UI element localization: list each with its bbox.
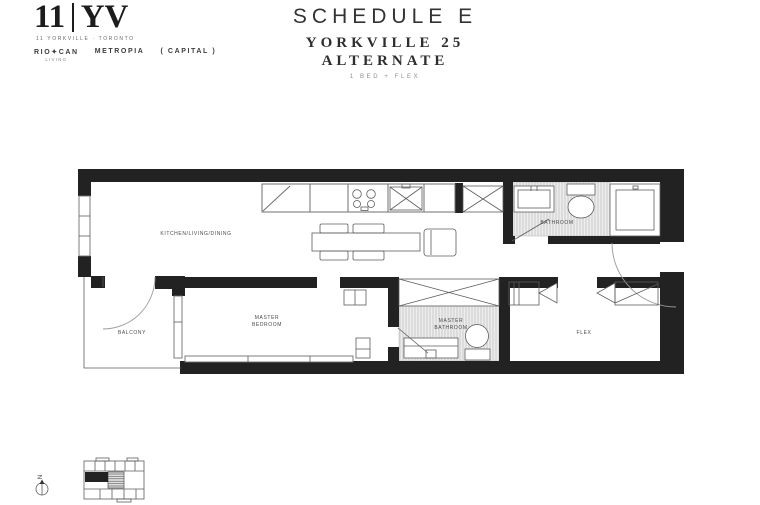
north-arrow-icon: N: [36, 475, 48, 495]
master-bathroom-label-2: BATHROOM: [434, 325, 467, 331]
floor-plan-drawing: KITCHEN/LIVING/DINING MASTER BEDROOM MAS…: [0, 0, 760, 505]
kitchen-living-dining-label: KITCHEN/LIVING/DINING: [160, 231, 231, 237]
key-plan: [84, 458, 144, 502]
balcony-label: BALCONY: [118, 330, 146, 336]
north-label: N: [38, 475, 44, 479]
vanity-sink-icon: [514, 186, 554, 212]
lounge-chair: [424, 229, 456, 256]
balcony-outline: [84, 277, 181, 368]
floorplan-page: 11 YV 11 YORKVILLE · TORONTO RIO✦CAN LIV…: [0, 0, 760, 505]
balcony-door-swing: [103, 277, 155, 329]
master-toilet-icon: [465, 325, 490, 361]
toilet-icon: [567, 184, 595, 218]
master-bathroom-label-1: MASTER: [439, 318, 463, 324]
cooktop-icon: [353, 190, 376, 211]
master-bedroom-label-2: BEDROOM: [252, 322, 282, 328]
bedroom-dresser: [356, 338, 370, 358]
dining-table: [312, 224, 420, 260]
master-bedroom-label-1: MASTER: [255, 315, 279, 321]
master-vanity-icon: [404, 338, 458, 358]
shower-icon: [610, 184, 660, 236]
keyplan-unit-highlight: [85, 472, 108, 482]
laundry-closet: [463, 186, 503, 212]
bathtub-icon: [399, 279, 499, 306]
bedroom-closet: [344, 290, 366, 305]
bathroom-label: BATHROOM: [540, 220, 573, 226]
flex-label: FLEX: [577, 330, 592, 336]
kitchen-sink-icon: [390, 184, 422, 210]
keyplan-core: [108, 472, 124, 488]
